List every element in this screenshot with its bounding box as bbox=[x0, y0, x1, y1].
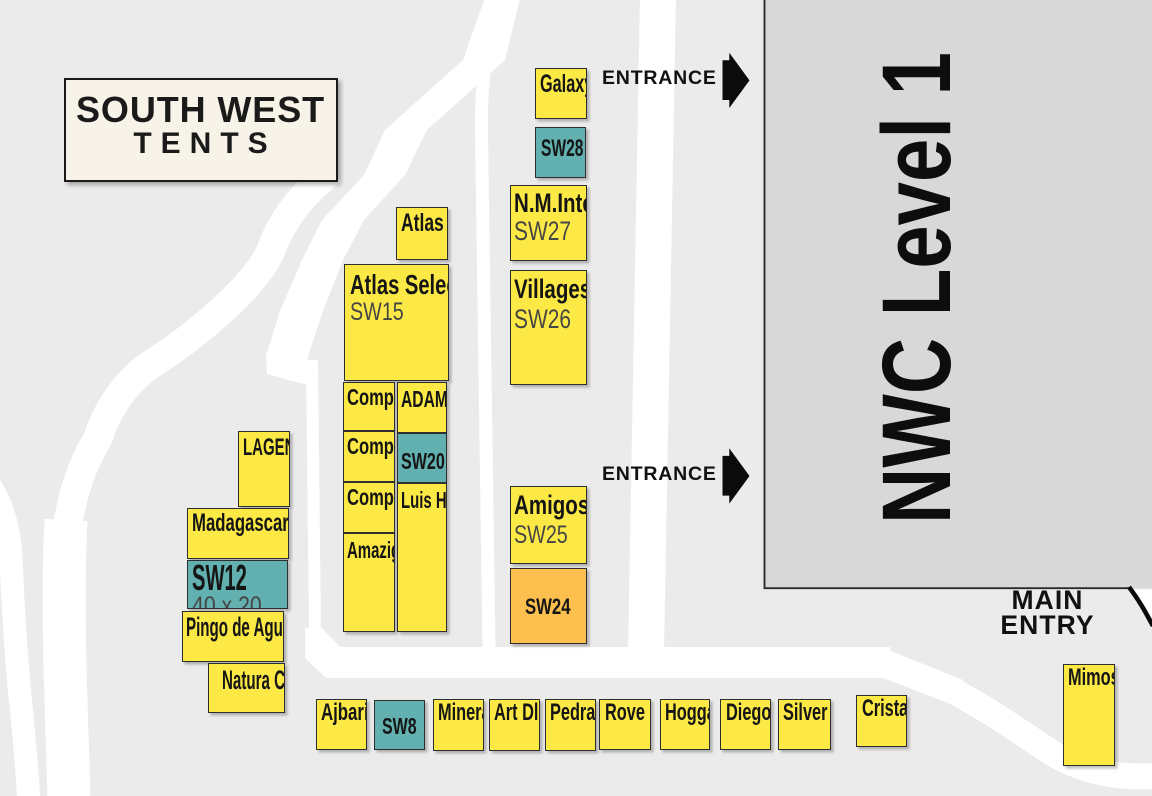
svg-text:NWC Level 1: NWC Level 1 bbox=[862, 52, 971, 524]
